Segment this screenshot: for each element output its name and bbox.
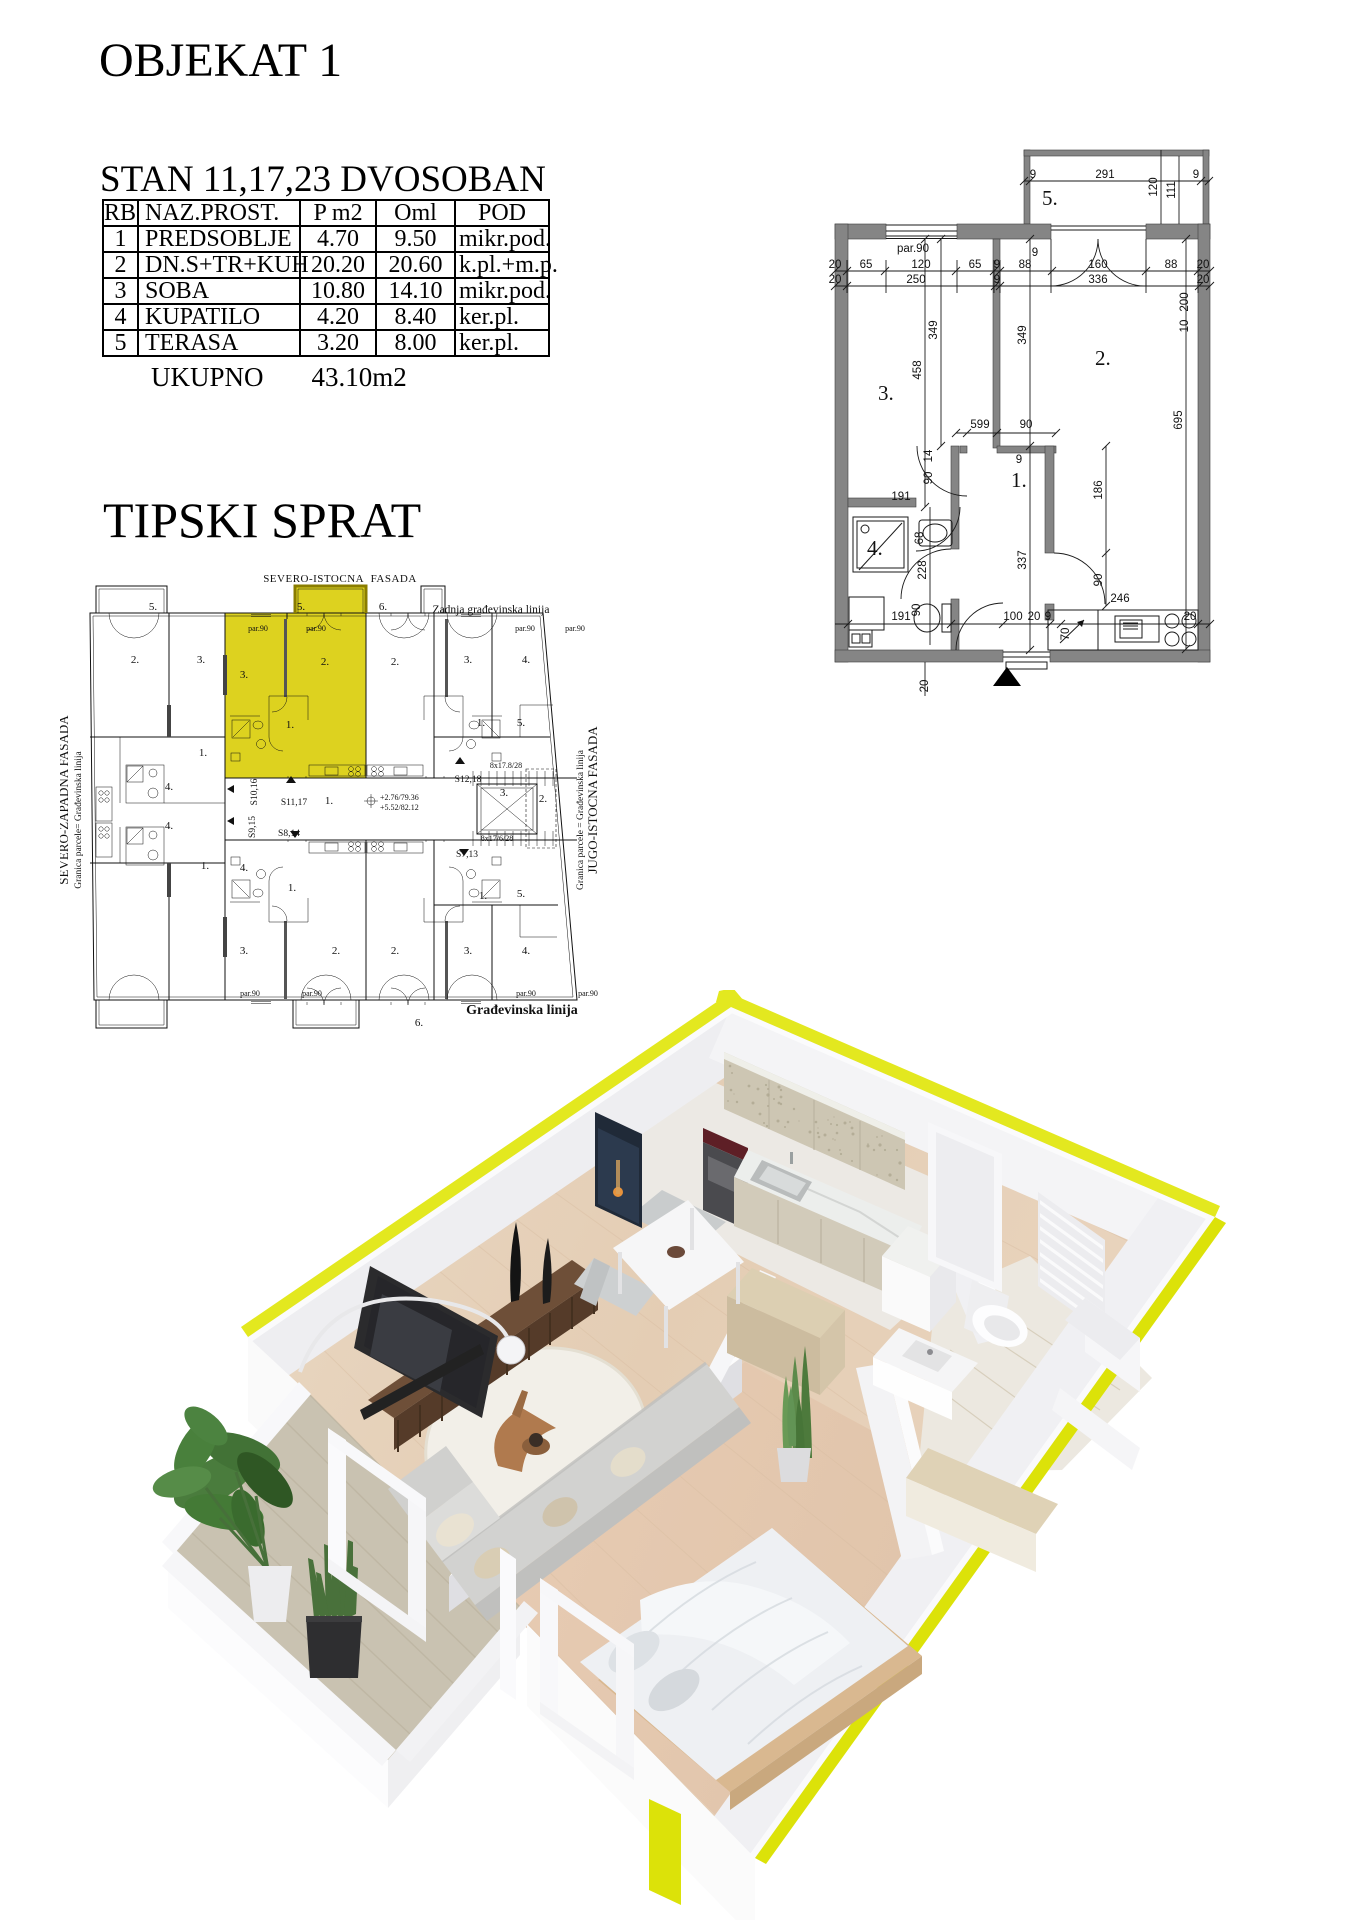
svg-text:Granica parcele= Građevinska l: Granica parcele= Građevinska linija <box>74 750 84 888</box>
svg-text:291: 291 <box>1095 169 1114 181</box>
svg-text:3.: 3. <box>878 381 894 405</box>
svg-text:20: 20 <box>829 259 842 271</box>
svg-text:70: 70 <box>1060 628 1072 641</box>
svg-text:1.: 1. <box>288 882 297 894</box>
svg-text:1.: 1. <box>325 795 334 807</box>
svg-text:111: 111 <box>1166 181 1178 198</box>
svg-text:5.: 5. <box>149 601 158 613</box>
svg-text:88: 88 <box>1019 259 1032 271</box>
svg-text:2.: 2. <box>539 793 548 805</box>
svg-text:349: 349 <box>1017 325 1029 344</box>
svg-text:1.: 1. <box>1011 468 1027 492</box>
svg-text:1.: 1. <box>479 890 488 902</box>
svg-text:8x17/6/28: 8x17/6/28 <box>481 834 513 843</box>
svg-text:1.: 1. <box>286 719 295 731</box>
svg-text:par.90: par.90 <box>515 624 535 633</box>
svg-text:S12,18: S12,18 <box>455 775 482 785</box>
svg-text:JUGO-ISTOCNA FASADA: JUGO-ISTOCNA FASADA <box>585 726 600 874</box>
svg-text:2.: 2. <box>131 654 140 666</box>
svg-text:160: 160 <box>1088 259 1107 271</box>
svg-text:3.: 3. <box>464 945 473 957</box>
svg-text:3.: 3. <box>500 787 509 799</box>
svg-text:191: 191 <box>891 491 910 503</box>
svg-text:20: 20 <box>1028 611 1041 623</box>
svg-text:9: 9 <box>994 259 1000 271</box>
svg-text:90: 90 <box>911 604 923 617</box>
svg-text:8x17.8/28: 8x17.8/28 <box>490 761 522 770</box>
svg-text:Zadnja građevinska linija: Zadnja građevinska linija <box>433 604 550 616</box>
svg-text:5.: 5. <box>517 888 526 900</box>
svg-text:9: 9 <box>1030 169 1036 181</box>
svg-text:+2.76/79.36: +2.76/79.36 <box>380 793 419 802</box>
svg-text:9: 9 <box>1193 169 1199 181</box>
svg-text:S9,15: S9,15 <box>248 816 258 838</box>
svg-text:2.: 2. <box>321 656 330 668</box>
svg-text:90: 90 <box>923 472 935 485</box>
svg-text:2.: 2. <box>391 656 400 668</box>
svg-text:599: 599 <box>970 419 989 431</box>
svg-text:4.: 4. <box>522 654 531 666</box>
svg-text:65: 65 <box>860 259 873 271</box>
svg-text:2.: 2. <box>332 945 341 957</box>
svg-text:4.: 4. <box>867 536 883 560</box>
svg-text:5.: 5. <box>297 601 306 613</box>
svg-text:3.: 3. <box>240 945 249 957</box>
svg-text:9: 9 <box>1032 247 1038 259</box>
svg-text:5.: 5. <box>517 717 526 729</box>
svg-text:20: 20 <box>1197 259 1210 271</box>
svg-text:120: 120 <box>911 259 930 271</box>
svg-text:336: 336 <box>1088 274 1107 286</box>
svg-text:4.: 4. <box>165 820 174 832</box>
svg-text:68: 68 <box>914 532 926 545</box>
svg-text:9: 9 <box>1016 454 1022 466</box>
svg-text:120: 120 <box>1148 177 1160 196</box>
svg-text:191: 191 <box>891 611 910 623</box>
svg-text:par.90: par.90 <box>565 624 585 633</box>
svg-text:6.: 6. <box>379 601 388 613</box>
svg-text:1.: 1. <box>201 860 210 872</box>
svg-text:4.: 4. <box>240 862 249 874</box>
svg-text:1.: 1. <box>199 747 208 759</box>
svg-text:par.90: par.90 <box>306 624 326 633</box>
svg-text:246: 246 <box>1110 593 1129 605</box>
svg-text:S10,16: S10,16 <box>250 778 260 805</box>
svg-text:10: 10 <box>1179 320 1191 333</box>
svg-text:9: 9 <box>994 274 1000 286</box>
svg-text:186: 186 <box>1093 480 1105 499</box>
svg-text:20: 20 <box>829 274 842 286</box>
svg-text:3.: 3. <box>464 654 473 666</box>
svg-text:100: 100 <box>1003 611 1022 623</box>
svg-text:250: 250 <box>906 274 925 286</box>
svg-text:2.: 2. <box>1095 346 1111 370</box>
svg-text:228: 228 <box>917 560 929 579</box>
svg-text:337: 337 <box>1017 550 1029 569</box>
svg-text:90: 90 <box>1020 419 1033 431</box>
svg-text:3.: 3. <box>197 654 206 666</box>
svg-text:4.: 4. <box>522 945 531 957</box>
svg-text:1.: 1. <box>477 717 486 729</box>
svg-text:+5.52/82.12: +5.52/82.12 <box>380 803 419 812</box>
svg-text:3.: 3. <box>240 669 249 681</box>
svg-text:SEVERO-ZAPADNA FASADA: SEVERO-ZAPADNA FASADA <box>60 715 71 885</box>
svg-text:9: 9 <box>1045 611 1051 623</box>
svg-text:par.90: par.90 <box>897 243 929 255</box>
svg-text:90: 90 <box>1093 574 1105 587</box>
svg-text:695: 695 <box>1173 410 1185 429</box>
svg-text:20: 20 <box>1197 274 1210 286</box>
svg-text:65: 65 <box>969 259 982 271</box>
svg-text:200: 200 <box>1179 292 1191 311</box>
svg-text:4.: 4. <box>165 781 174 793</box>
svg-text:2.: 2. <box>391 945 400 957</box>
svg-text:14: 14 <box>923 449 935 462</box>
svg-text:S11,17: S11,17 <box>281 798 308 808</box>
svg-text:5.: 5. <box>1042 186 1058 210</box>
svg-text:458: 458 <box>912 360 924 379</box>
svg-text:349: 349 <box>928 320 940 339</box>
svg-text:par.90: par.90 <box>248 624 268 633</box>
svg-text:SEVERO-ISTOCNA FASADA: SEVERO-ISTOCNA FASADA <box>263 573 417 585</box>
svg-text:20: 20 <box>1184 611 1197 623</box>
svg-text:88: 88 <box>1165 259 1178 271</box>
